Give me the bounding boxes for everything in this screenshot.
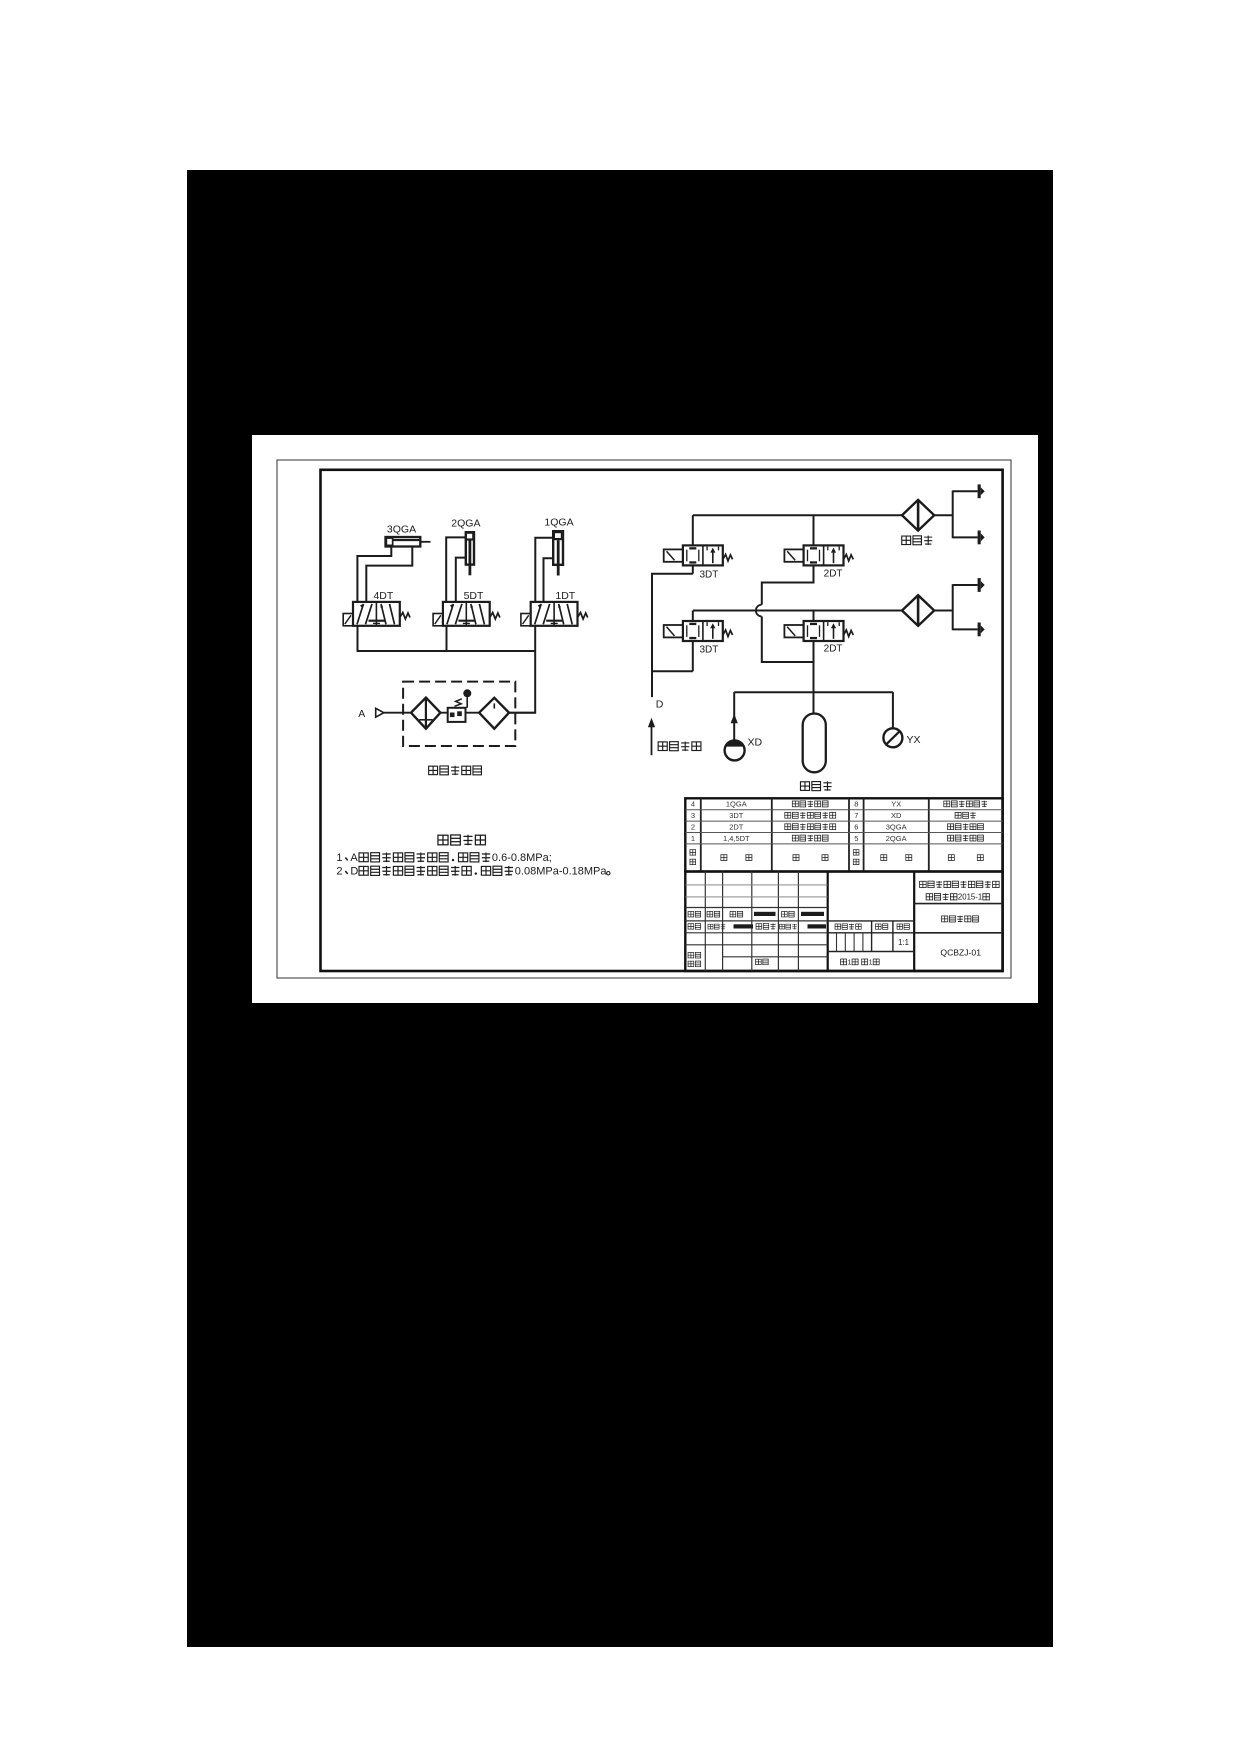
svg-text:A: A — [358, 708, 365, 720]
svg-text:3DT: 3DT — [699, 570, 718, 581]
svg-text:2DT: 2DT — [824, 569, 843, 580]
svg-text:3DT: 3DT — [699, 645, 718, 656]
svg-text:QCBZJ-01: QCBZJ-01 — [940, 948, 981, 958]
svg-text:YX: YX — [891, 800, 901, 809]
svg-text:4: 4 — [691, 800, 695, 809]
svg-text:2015-1: 2015-1 — [958, 893, 982, 902]
svg-text:0.08MPa-0.18MPa: 0.08MPa-0.18MPa — [515, 866, 608, 878]
svg-text:2DT: 2DT — [729, 823, 744, 832]
svg-text:YX: YX — [907, 734, 921, 746]
svg-text:3QGA: 3QGA — [387, 524, 416, 536]
svg-text:7: 7 — [854, 811, 858, 820]
svg-text:5DT: 5DT — [464, 590, 484, 602]
svg-text:1: 1 — [691, 834, 695, 843]
svg-text:XD: XD — [748, 737, 763, 749]
svg-text:D: D — [656, 699, 664, 711]
svg-text:0.6-0.8MPa;: 0.6-0.8MPa; — [492, 852, 552, 864]
svg-text:2QGA: 2QGA — [451, 518, 480, 530]
svg-text:8: 8 — [854, 800, 858, 809]
svg-text:XD: XD — [891, 811, 902, 820]
svg-text:2QGA: 2QGA — [886, 834, 907, 843]
svg-text:4DT: 4DT — [373, 590, 393, 602]
svg-text:A: A — [350, 852, 358, 864]
svg-text:5: 5 — [854, 834, 858, 843]
svg-text:1:1: 1:1 — [898, 938, 909, 947]
svg-text:1,4,5DT: 1,4,5DT — [723, 834, 750, 843]
svg-text:6: 6 — [854, 823, 858, 832]
svg-text:1: 1 — [336, 852, 342, 864]
svg-text:3: 3 — [691, 811, 695, 820]
svg-text:1: 1 — [869, 957, 873, 966]
svg-text:3DT: 3DT — [729, 811, 744, 820]
svg-text:D: D — [350, 866, 358, 878]
svg-text:1DT: 1DT — [555, 590, 575, 602]
svg-text:2: 2 — [691, 823, 695, 832]
svg-text:1: 1 — [848, 957, 852, 966]
svg-text:2: 2 — [336, 866, 342, 878]
svg-text:1QGA: 1QGA — [544, 517, 573, 529]
svg-text:2DT: 2DT — [824, 644, 843, 655]
svg-text:1QGA: 1QGA — [726, 800, 747, 809]
svg-text:3QGA: 3QGA — [886, 823, 907, 832]
